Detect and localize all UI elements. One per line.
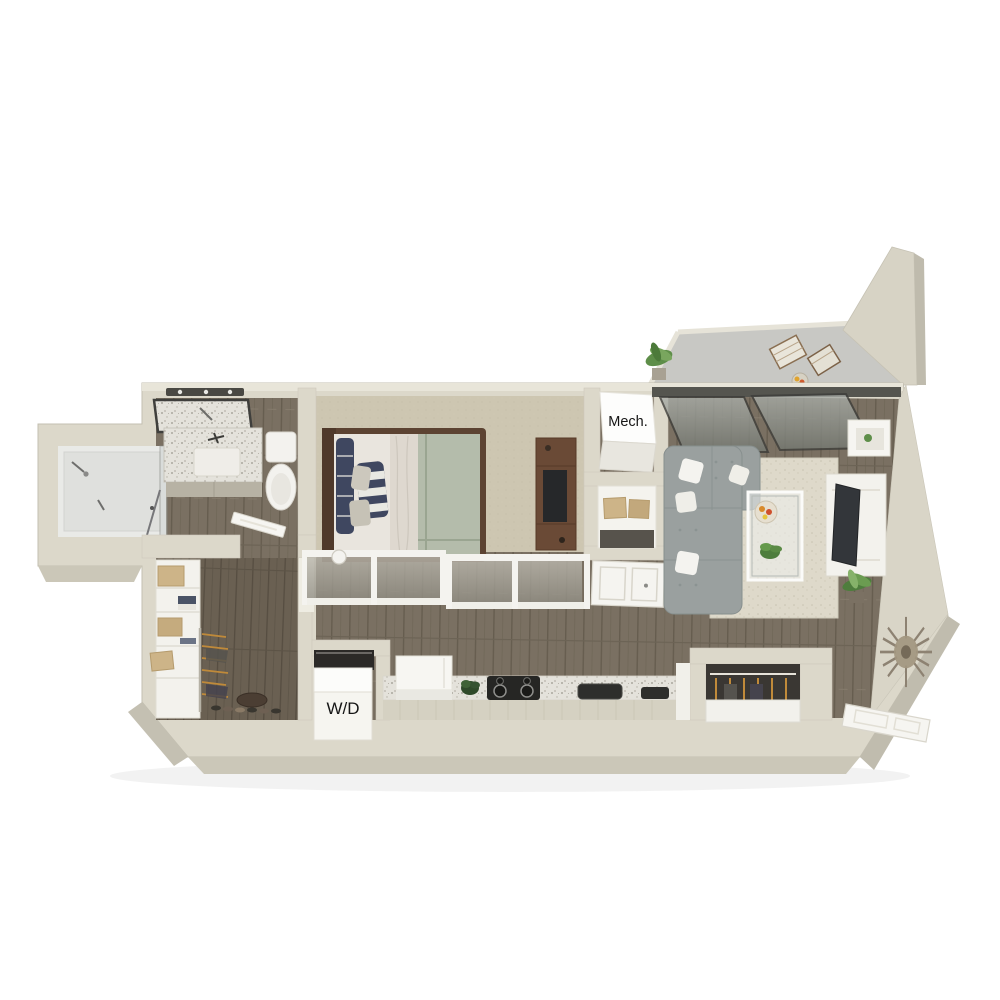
partition-mullion: [512, 554, 518, 609]
partition-mullion: [302, 550, 307, 605]
wall-mech-bottom: [584, 472, 668, 486]
light-bulb: [178, 390, 182, 394]
balcony: [643, 247, 926, 389]
hanging-coat: [724, 684, 737, 702]
wall-bath-bottom-a: [142, 535, 240, 558]
partition-glass: [450, 561, 512, 604]
storage-box: [150, 651, 174, 671]
bed-duvet: [418, 434, 480, 556]
toilet: [266, 432, 296, 510]
glass-partition: [302, 550, 590, 609]
duffel-bag: [237, 693, 267, 707]
cubby-box: [629, 499, 650, 518]
partition-glass: [516, 561, 582, 604]
vanity-mirror: [154, 400, 252, 432]
light-bulb: [228, 390, 232, 394]
storage-box: [158, 618, 182, 636]
shower-door-handle: [150, 506, 154, 510]
fruit: [766, 509, 772, 515]
sofa-pillow: [675, 491, 698, 514]
bedroom: [322, 428, 576, 562]
cooktop-insert: [641, 687, 669, 699]
fruit: [763, 515, 768, 520]
sliding-door: [591, 561, 664, 607]
accent-pillow: [350, 465, 371, 491]
living-tv: [832, 484, 860, 566]
partition-mullion: [584, 554, 590, 609]
coffee-table: [748, 492, 802, 580]
bedroom-tv: [543, 470, 567, 522]
mechanical-closet: Mech.: [599, 392, 656, 472]
partition-glass: [376, 557, 440, 600]
mech-unit-front: [599, 441, 656, 472]
cubby-box: [603, 497, 626, 518]
wall-bath-bedroom: [298, 388, 316, 535]
shower-pan: [64, 452, 160, 531]
wall-face-annex: [38, 566, 142, 582]
wall-coat-closet-right: [800, 664, 832, 720]
fruit: [759, 506, 765, 512]
vanity-sink: [194, 448, 240, 476]
floor-cup: [332, 550, 346, 564]
dresser-item: [545, 445, 551, 451]
kitchen-sink: [578, 684, 622, 699]
coat-closet-cabinet: [706, 700, 800, 722]
wd-label: W/D: [326, 699, 359, 718]
bath-door-floor: [240, 535, 298, 558]
floor-plan-svg: Mech.: [0, 0, 1000, 1000]
storage-box: [158, 566, 184, 586]
floor-plan-image: Mech.: [0, 0, 1000, 1000]
wall-coat-closet-top: [690, 648, 832, 664]
bed-blanket: [390, 434, 420, 556]
counter-end-panel: [676, 663, 690, 720]
living-room: [652, 387, 901, 618]
accent-pillow: [349, 499, 371, 527]
end-table: [848, 420, 890, 456]
partition-mullion: [446, 554, 452, 609]
partition-mullion: [440, 550, 446, 605]
laundry-closet: W/D: [314, 650, 374, 740]
kitchen-cabinet-front: [383, 700, 676, 720]
wd-unit-top: [314, 668, 372, 692]
bed-headboard: [322, 428, 336, 562]
refrigerator: [396, 656, 452, 700]
partition-mullion: [371, 550, 377, 605]
cubby-under-shelf: [600, 530, 654, 548]
stove: [487, 676, 540, 700]
mech-label: Mech.: [608, 414, 648, 430]
storage-cubby: [598, 486, 656, 548]
wall-face-bottom: [188, 757, 860, 774]
hanging-coat: [750, 684, 763, 702]
sofa-pillow: [674, 550, 699, 575]
dresser-item: [559, 537, 565, 543]
dresser-tv-stand: [536, 438, 576, 550]
light-bulb: [204, 390, 208, 394]
shower-room: [58, 446, 167, 537]
coat-closet: [706, 664, 800, 722]
tv-console: [826, 474, 886, 576]
small-plant: [864, 434, 872, 442]
wall-coat-closet-left: [690, 664, 706, 720]
